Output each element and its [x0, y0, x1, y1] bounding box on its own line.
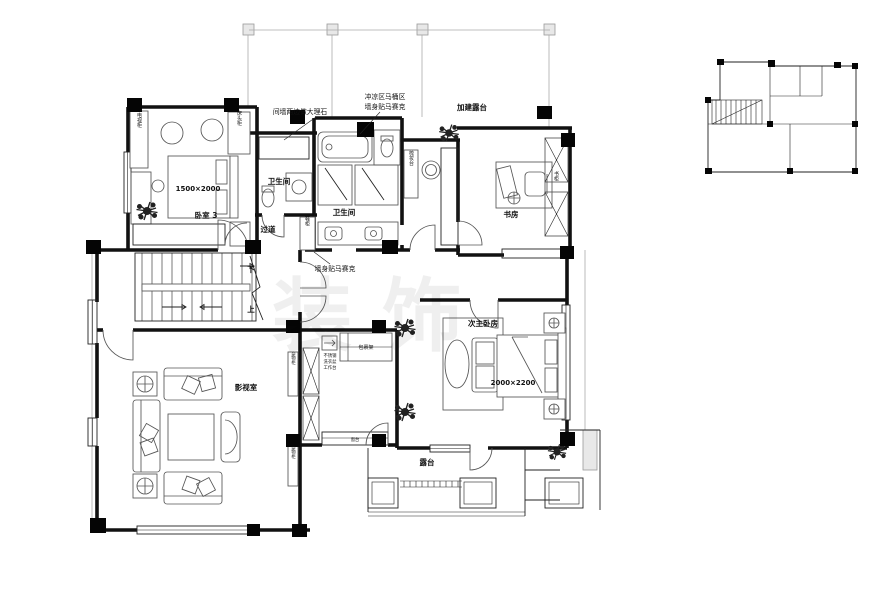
dim-bed3: 1500×2000: [176, 185, 221, 193]
room-label-bedroom3: 卧室 3: [195, 210, 218, 220]
coffee-table: [168, 414, 214, 460]
laundry-note-2: 洗衣盆: [324, 358, 338, 365]
planter-1: [372, 482, 394, 504]
shower-cell-1: [318, 165, 352, 205]
bedside-cabinet-label: 床头柜: [236, 110, 242, 127]
room-label-study: 书房: [504, 209, 519, 219]
master2-furniture: [443, 313, 566, 419]
sofa-left: [133, 400, 160, 472]
staircase: [135, 253, 263, 321]
floor-plan-drawing: 间墙两边做大理石 冲凉区马桶区 墙身贴马赛克 加建露台 墙身贴马赛克 卧室 3 …: [0, 0, 878, 614]
labels: 间墙两边做大理石 冲凉区马桶区 墙身贴马赛克 加建露台 墙身贴马赛克 卧室 3 …: [136, 92, 559, 467]
annotation-wet-2: 墙身贴马赛克: [365, 102, 406, 111]
floor-plan-page: 间墙两边做大理石 冲凉区马桶区 墙身贴马赛克 加建露台 墙身贴马赛克 卧室 3 …: [0, 0, 878, 614]
closet: [441, 148, 458, 245]
cabinet-lower-label: 杂物柜: [291, 445, 296, 460]
stairs-down-label: 下: [247, 265, 255, 274]
annex-pier: [583, 430, 597, 470]
room-label-media: 影视室: [235, 382, 258, 392]
bookcase-label: 书柜: [553, 170, 559, 182]
stairs-up-label: 上: [247, 304, 255, 314]
room-label-bathroom1: 卫生间: [268, 176, 291, 186]
laundry-note-3: 工作台: [324, 364, 337, 371]
dim-master-bed: 2000×2200: [491, 379, 536, 387]
room-label-terrace: 露台: [420, 457, 435, 467]
annotation-marble: 间墙两边做大理石: [273, 107, 328, 116]
oval-rug: [445, 340, 469, 388]
shoe-cabinet-label: 鞋柜: [304, 215, 310, 227]
plant-bedroom3: [137, 202, 158, 220]
window-sill-label: 窗台: [351, 436, 360, 443]
annotation-wet-1: 冲凉区马桶区: [365, 92, 406, 101]
laundry-room: [303, 333, 392, 440]
package-rack-label: 包裹架: [358, 344, 373, 351]
room-label-master2: 次主卧房: [468, 318, 498, 328]
room-label-bathroom2: 卫生间: [333, 207, 356, 217]
mirror: [422, 161, 440, 179]
planter-2: [464, 482, 492, 504]
bathroom2-fixtures: [318, 130, 400, 245]
railing: [400, 481, 462, 487]
laundry-note-1: 不锈钢: [324, 352, 337, 359]
media-room-furniture: [133, 352, 298, 504]
roof-projection-lines: [92, 24, 585, 530]
toilet2: [381, 139, 393, 157]
washbasin: [292, 180, 306, 194]
annotation-added-terrace: 加建露台: [456, 102, 487, 112]
dressing-table-label: 梳妆台: [408, 150, 414, 167]
master-bed: [497, 335, 560, 397]
study-furniture: [496, 138, 568, 236]
wc-cell: [374, 130, 400, 165]
wardrobe: [133, 224, 225, 245]
shower-cell-2: [355, 165, 398, 205]
planter-3: [549, 482, 579, 504]
plant-hall: [395, 319, 416, 337]
annotation-mosaic: 墙身贴马赛克: [315, 264, 356, 273]
key-plan: [705, 59, 858, 174]
cabinet-upper-label: 杂物柜: [291, 351, 296, 366]
sofa-top: [164, 368, 222, 400]
sofa-bottom: [164, 472, 222, 504]
bed3-headboard: [230, 156, 238, 218]
dressing-area: [300, 148, 458, 250]
bathroom1-fixtures: [259, 137, 312, 207]
room-label-corridor: 过道: [261, 224, 276, 234]
tv-cabinet-label: 电视柜: [136, 112, 142, 129]
bedroom3-furniture: [130, 111, 250, 246]
desk: [496, 162, 552, 208]
shower-mosaic: [259, 137, 309, 159]
